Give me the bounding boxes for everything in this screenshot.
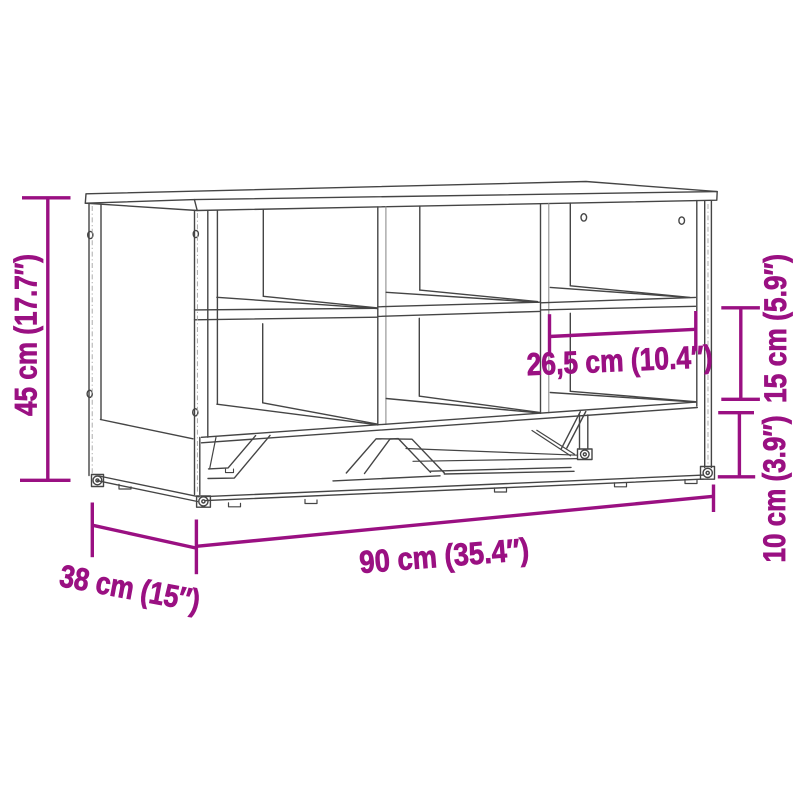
svg-text:15 cm (5.9″): 15 cm (5.9″) — [757, 254, 793, 403]
svg-text:45 cm (17.7″): 45 cm (17.7″) — [8, 254, 44, 416]
svg-text:10 cm (3.9″): 10 cm (3.9″) — [756, 416, 792, 563]
